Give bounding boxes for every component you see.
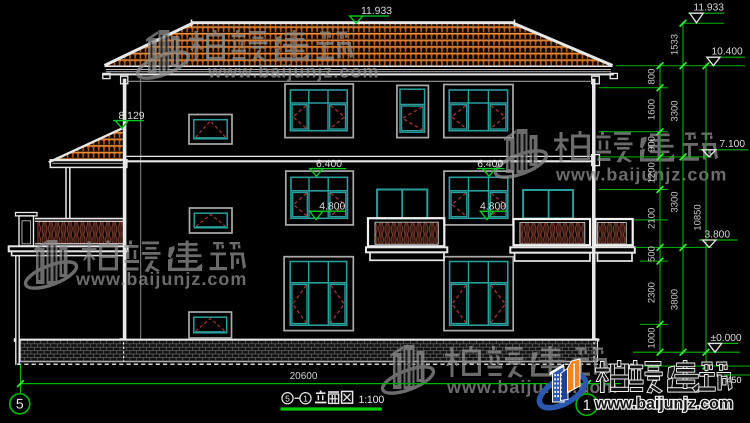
svg-text:800: 800 <box>647 69 658 85</box>
svg-text:1000: 1000 <box>647 327 658 348</box>
svg-text:1: 1 <box>583 397 591 414</box>
svg-text:www.baijunjz.com: www.baijunjz.com <box>446 377 618 397</box>
svg-text:3.800: 3.800 <box>705 229 731 240</box>
svg-text:3300: 3300 <box>670 100 681 121</box>
svg-text:10.400: 10.400 <box>712 47 743 58</box>
svg-text:2300: 2300 <box>647 282 658 303</box>
svg-text:10850: 10850 <box>693 204 704 230</box>
svg-text:1200: 1200 <box>647 162 658 183</box>
svg-text:7.100: 7.100 <box>720 139 746 150</box>
svg-text:±0.000: ±0.000 <box>711 333 742 344</box>
svg-text:3300: 3300 <box>670 191 681 212</box>
svg-text:1:100: 1:100 <box>359 394 385 406</box>
svg-text:2100: 2100 <box>647 208 658 229</box>
svg-text:11.933: 11.933 <box>694 3 725 14</box>
svg-text:3800: 3800 <box>670 289 681 310</box>
svg-text:1533: 1533 <box>670 34 681 55</box>
svg-text:www.baijunjz.com: www.baijunjz.com <box>555 165 727 185</box>
svg-text:www.baijunjz.com: www.baijunjz.com <box>594 396 733 413</box>
svg-text:1600: 1600 <box>647 99 658 120</box>
svg-text:5: 5 <box>285 393 290 403</box>
svg-text:20600: 20600 <box>290 371 318 382</box>
svg-text:500: 500 <box>647 246 658 262</box>
svg-text:www.baijunjz.com: www.baijunjz.com <box>207 62 379 82</box>
svg-text:www.baijunjz.com: www.baijunjz.com <box>75 269 247 289</box>
svg-text:900: 900 <box>647 136 658 152</box>
svg-text:1: 1 <box>303 393 308 403</box>
svg-text:450: 450 <box>727 375 742 385</box>
svg-text:5: 5 <box>16 396 24 412</box>
